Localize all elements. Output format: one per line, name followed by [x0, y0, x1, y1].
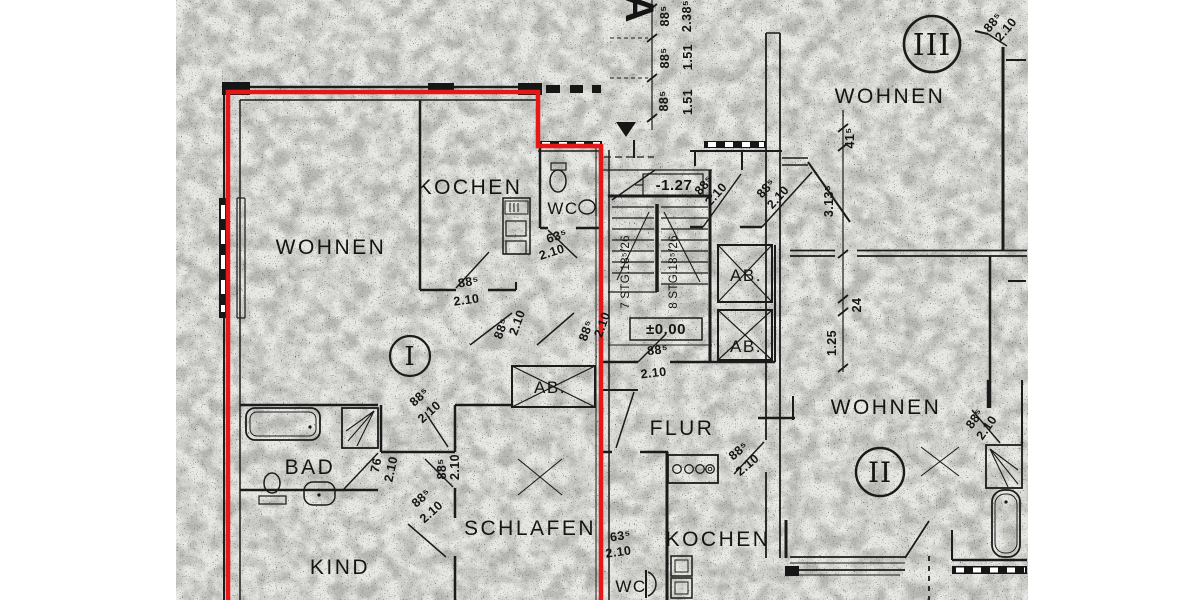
- room-label-wohnen-1: WOHNEN: [276, 236, 387, 259]
- dim-corridor-door-w: 88⁵: [435, 459, 449, 480]
- dim-125: 1.25: [825, 330, 839, 356]
- dim-24: 24: [850, 298, 864, 313]
- dim-wc2-door-w: 63⁵: [609, 528, 632, 545]
- dim-corridor-door-h: 2.10: [448, 454, 462, 480]
- room-label-kind: KIND: [310, 556, 370, 579]
- dim-chain-3b: 1.51: [681, 89, 695, 115]
- room-label-schlafen: SCHLAFEN: [464, 517, 596, 540]
- room-label-wc-1: WC: [547, 199, 578, 218]
- room-label-kochen-1: KOCHEN: [418, 176, 523, 199]
- room-label-wc-2: WC: [615, 577, 646, 596]
- dim-kochen1-door-w: 88⁵: [457, 274, 480, 291]
- dim-chain-1b: 2.38⁵: [680, 0, 694, 32]
- room-label-bad: BAD: [285, 456, 336, 479]
- dim-3135: 3.13⁵: [822, 185, 836, 217]
- dim-chain-2b: 1.51: [681, 44, 695, 70]
- room-label-kochen-2: KOCHEN: [666, 528, 771, 551]
- room-label-wohnen-3: WOHNEN: [835, 85, 946, 108]
- dim-bad-door-w: 76: [368, 457, 385, 474]
- section-mark-a: A: [617, 0, 661, 22]
- level-entry: -1.27: [656, 177, 693, 194]
- dim-stair-door-w: 88⁵: [646, 342, 668, 358]
- unit-number-3: III: [913, 28, 952, 63]
- level-zero: ±0.00: [646, 321, 686, 338]
- floor-plan-drawing: WOHNEN KOCHEN WC BAD KIND SCHLAFEN FLUR …: [0, 0, 1200, 600]
- dim-stair-door-h: 2.10: [640, 365, 667, 382]
- dim-415: 41⁵: [843, 128, 857, 149]
- shaft-label-1: AB.: [534, 378, 566, 397]
- dim-chain-2a: 88⁵: [658, 48, 672, 69]
- unit-number-1: I: [404, 342, 415, 372]
- stair-label-left: 7 STG.18⁵/26: [620, 235, 632, 309]
- floor-plan-screenshot: WOHNEN KOCHEN WC BAD KIND SCHLAFEN FLUR …: [0, 0, 1200, 600]
- shaft-label-3: AB.: [730, 337, 762, 356]
- dim-chain-1a: 88⁵: [658, 6, 672, 27]
- room-label-wohnen-2: WOHNEN: [831, 396, 942, 419]
- shaft-label-2: AB.: [730, 266, 762, 285]
- stair-label-right: 8 STG.18⁵/26: [668, 235, 680, 309]
- room-label-flur: FLUR: [650, 417, 715, 440]
- dim-chain-3a: 88⁵: [657, 91, 671, 112]
- unit-number-2: II: [868, 456, 892, 489]
